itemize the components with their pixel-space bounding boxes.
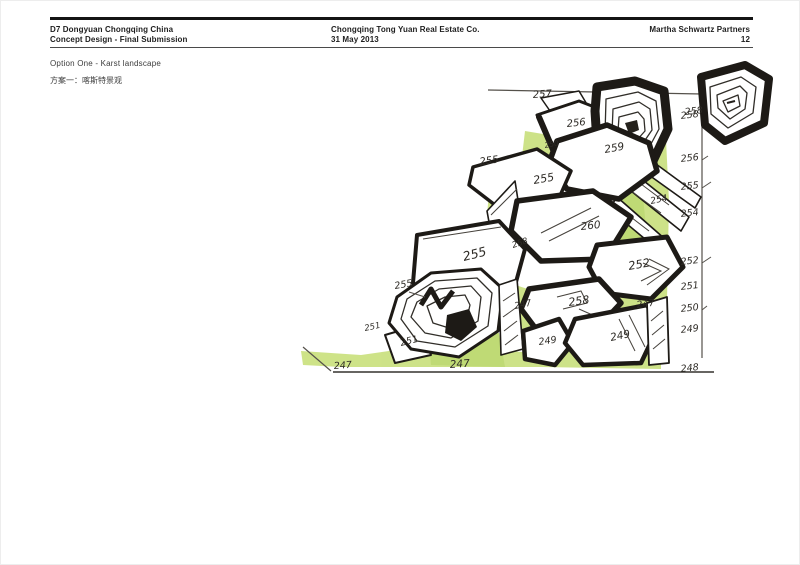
elevation-label: 258 <box>680 109 699 122</box>
elevation-label: 257 <box>532 89 552 101</box>
elevation-label: 251 <box>364 321 382 334</box>
elevation-label: 255 <box>680 180 699 193</box>
scale-labels: 258256255254252251250249248 <box>680 109 699 375</box>
elevation-label: 247 <box>449 358 470 371</box>
contour-stone-right <box>701 65 769 141</box>
elevation-label: 249 <box>680 323 699 336</box>
elevation-label: 252 <box>680 255 699 268</box>
elevation-label: 260 <box>580 219 602 233</box>
elevation-label: 256 <box>680 152 699 165</box>
elevation-label: 250 <box>680 302 699 315</box>
elevation-label: 247 <box>333 360 352 372</box>
elevation-label: 254 <box>680 207 699 220</box>
elevation-label: 248 <box>680 362 699 375</box>
elevation-label: 251 <box>680 280 699 293</box>
elevation-label: 256 <box>566 117 586 130</box>
scale-ticks <box>702 156 711 310</box>
karst-landscape-sketch: 2572562502552582592552542602552582522552… <box>1 1 800 565</box>
stones <box>385 65 769 365</box>
document-page: D7 Dongyuan Chongqing China Concept Desi… <box>0 0 800 565</box>
